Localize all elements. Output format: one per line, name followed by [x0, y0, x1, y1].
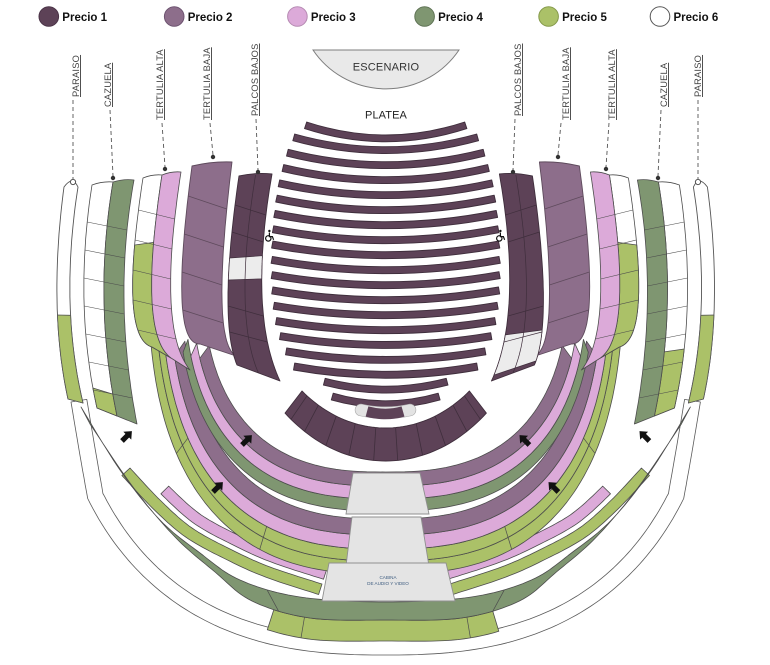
svg-text:Precio 1: Precio 1	[62, 12, 107, 24]
svg-text:TERTULIA BAJA: TERTULIA BAJA	[561, 47, 571, 120]
svg-text:DE AUDIO Y VIDEO: DE AUDIO Y VIDEO	[367, 581, 409, 586]
svg-text:ESCENARIO: ESCENARIO	[353, 62, 420, 74]
svg-text:PARAISO: PARAISO	[693, 55, 703, 97]
svg-text:Precio 5: Precio 5	[562, 12, 607, 24]
svg-text:CAZUELA: CAZUELA	[103, 62, 113, 107]
svg-text:CAZUELA: CAZUELA	[659, 62, 669, 107]
svg-text:PALCOS BAJOS: PALCOS BAJOS	[250, 44, 260, 117]
svg-text:Precio 3: Precio 3	[311, 12, 356, 24]
svg-text:TERTULIA ALTA: TERTULIA ALTA	[607, 49, 617, 120]
svg-text:Precio 2: Precio 2	[188, 12, 233, 24]
svg-text:CABINA: CABINA	[379, 575, 397, 580]
svg-text:PALCOS BAJOS: PALCOS BAJOS	[513, 44, 523, 117]
svg-text:TERTULIA BAJA: TERTULIA BAJA	[202, 47, 212, 120]
svg-text:Precio 6: Precio 6	[674, 12, 719, 24]
svg-text:PARAISO: PARAISO	[71, 55, 81, 97]
svg-text:TERTULIA ALTA: TERTULIA ALTA	[155, 49, 165, 120]
svg-text:Precio 4: Precio 4	[438, 12, 483, 24]
svg-text:PLATEA: PLATEA	[365, 110, 408, 122]
